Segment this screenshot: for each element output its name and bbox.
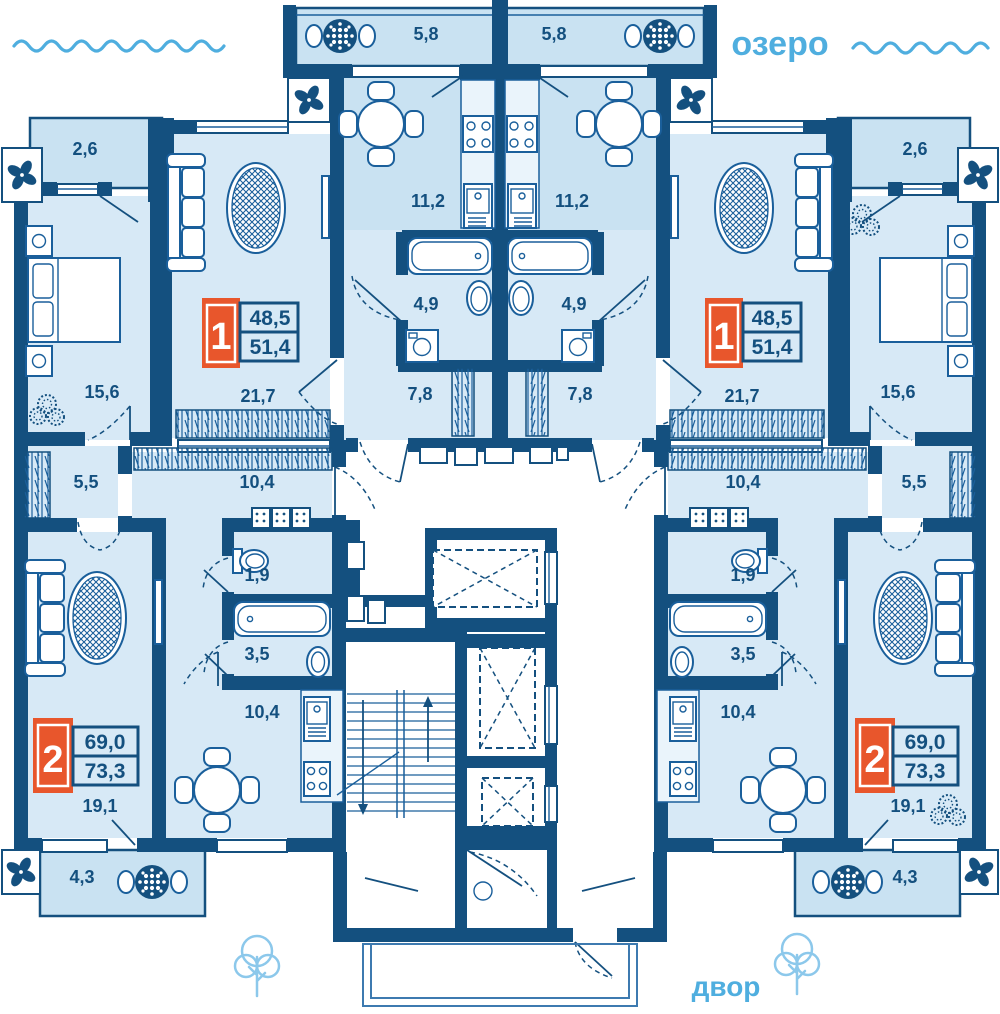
nightstand — [26, 226, 52, 256]
area-label-bedroom-right: 15,6 — [880, 382, 915, 402]
area-label-wc-b-left: 1,9 — [244, 565, 269, 585]
area-main: 69,0 — [85, 731, 126, 754]
vestibule — [365, 850, 635, 978]
area-main: 69,0 — [905, 731, 946, 754]
apartment-number: 1 — [713, 316, 734, 358]
area-label-balcony-top-right: 5,8 — [541, 24, 566, 44]
area-label-bathroom-a-right: 4,9 — [561, 294, 586, 314]
apartment-type-2-left-badge: 2 69,0 73,3 — [33, 718, 138, 793]
area-label-balcony-side-left: 2,6 — [72, 139, 97, 159]
area-label-bathroom-a-left: 4,9 — [413, 294, 438, 314]
lake-wave-left — [14, 41, 224, 51]
elevator-3 — [482, 778, 557, 826]
dining-table — [194, 767, 240, 813]
area-label-bathroom-b-right: 3,5 — [730, 644, 755, 664]
bathtub — [234, 602, 330, 636]
elevator-1 — [433, 550, 557, 607]
area-label-living-b-left: 19,1 — [82, 796, 117, 816]
yard-label: двор — [692, 971, 761, 1002]
area-label-living-b-right: 19,1 — [890, 796, 925, 816]
dining-table — [358, 101, 404, 147]
area-label-balcony-bottom-left: 4,3 — [69, 867, 94, 887]
central-core — [333, 447, 667, 1006]
area-label-balcony-bottom-right: 4,3 — [892, 867, 917, 887]
area-label-hall-b-left: 5,5 — [73, 472, 98, 492]
apartment-type-2-right-badge: 2 69,0 73,3 — [855, 718, 958, 793]
area-label-kitchen-a-left: 11,2 — [411, 191, 445, 211]
apartment-type-1-right-badge: 1 48,5 51,4 — [705, 298, 801, 368]
area-main: 48,5 — [752, 307, 793, 330]
tree-icon — [775, 934, 819, 994]
area-label-corridor-b-left: 10,4 — [239, 472, 274, 492]
staircase — [337, 690, 455, 818]
area-label-wc-b-right: 1,9 — [730, 565, 755, 585]
stairs-up-arrow — [423, 696, 433, 707]
tv — [155, 580, 162, 644]
area-label-balcony-side-right: 2,6 — [902, 139, 927, 159]
balcony-table — [323, 19, 357, 53]
area-label-living-a-right: 21,7 — [724, 386, 759, 406]
apartment-number: 2 — [42, 739, 63, 781]
tree-icon — [235, 936, 279, 996]
stove — [304, 762, 330, 796]
area-label-kitchen-b-left: 10,4 — [244, 702, 279, 722]
area-main: 48,5 — [250, 307, 291, 330]
bathtub — [408, 238, 492, 274]
area-total: 73,3 — [85, 760, 126, 783]
tv — [322, 176, 329, 238]
balcony-table — [135, 865, 169, 899]
sink — [304, 697, 330, 741]
lake-wave-right — [853, 43, 988, 53]
area-total: 73,3 — [905, 760, 946, 783]
floor-drain — [474, 882, 492, 900]
stairs-down-arrow — [358, 804, 368, 815]
floor-plan-page: 5,8 5,8 2,6 2,6 11,2 11,2 4,9 4,9 7,8 7,… — [0, 0, 1000, 1014]
area-label-hall-a-left: 7,8 — [407, 384, 432, 404]
apartment-number: 1 — [210, 316, 231, 358]
area-label-living-a-left: 21,7 — [240, 386, 275, 406]
area-label-balcony-top-left: 5,8 — [413, 24, 438, 44]
area-label-hall-b-right: 5,5 — [901, 472, 926, 492]
bed — [28, 258, 120, 342]
area-label-kitchen-b-right: 10,4 — [720, 702, 755, 722]
area-total: 51,4 — [752, 336, 793, 359]
apartment-number: 2 — [864, 739, 885, 781]
area-label-kitchen-a-right: 11,2 — [555, 191, 589, 211]
area-label-bedroom-left: 15,6 — [84, 382, 119, 402]
area-label-hall-a-right: 7,8 — [567, 384, 592, 404]
area-label-bathroom-b-left: 3,5 — [244, 644, 269, 664]
floor-plan: 5,8 5,8 2,6 2,6 11,2 11,2 4,9 4,9 7,8 7,… — [0, 0, 1000, 1014]
area-total: 51,4 — [250, 336, 291, 359]
washing-machine — [406, 330, 438, 362]
entrance-porch — [363, 944, 637, 1006]
lake-label: озеро — [731, 25, 828, 63]
apartment-type-1-left-badge: 1 48,5 51,4 — [202, 298, 298, 368]
nightstand — [26, 346, 52, 376]
cabinets — [252, 508, 310, 528]
area-label-corridor-b-right: 10,4 — [725, 472, 760, 492]
